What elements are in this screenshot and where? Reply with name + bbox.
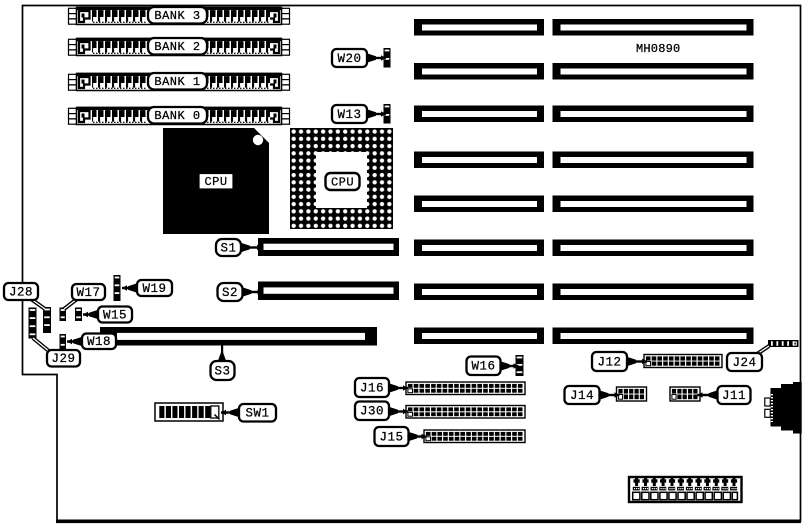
svg-text:J11: J11 [722,389,746,403]
svg-text:S3: S3 [214,364,230,378]
svg-text:W18: W18 [87,335,111,349]
svg-text:S2: S2 [222,286,238,300]
svg-text:J14: J14 [570,389,594,403]
svg-text:J12: J12 [597,355,621,369]
svg-text:MH0890: MH0890 [636,42,680,56]
svg-text:W19: W19 [142,282,166,296]
svg-text:BANK 0: BANK 0 [154,109,200,123]
svg-text:J15: J15 [379,430,403,444]
svg-text:S1: S1 [220,241,236,255]
svg-text:J24: J24 [732,356,756,370]
svg-text:BANK 3: BANK 3 [154,9,200,23]
svg-text:BANK 2: BANK 2 [154,40,200,54]
svg-text:W17: W17 [76,286,100,300]
svg-text:J29: J29 [51,352,75,366]
svg-text:CPU: CPU [204,175,227,189]
svg-text:W20: W20 [337,52,361,66]
svg-text:W13: W13 [337,108,361,122]
svg-text:J16: J16 [360,381,384,395]
svg-text:J28: J28 [9,285,33,299]
svg-text:W16: W16 [471,360,495,374]
svg-text:SW1: SW1 [245,407,269,421]
svg-text:J30: J30 [360,405,384,419]
svg-text:BANK 1: BANK 1 [154,75,200,89]
svg-text:W15: W15 [103,308,127,322]
svg-text:CPU: CPU [331,175,354,189]
